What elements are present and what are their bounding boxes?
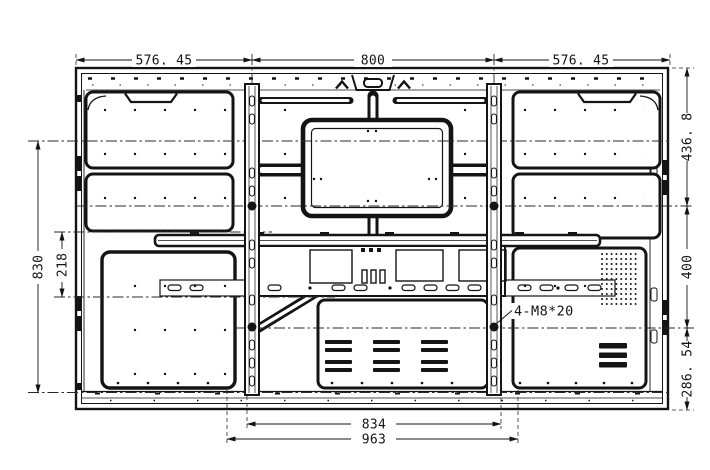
- dim-right-top-label: 436. 8: [681, 113, 696, 162]
- technical-drawing-page: 576. 45 800 576. 45 436. 8 400 286. 54 8…: [0, 0, 710, 470]
- vesa-rail-right: [487, 84, 501, 395]
- vent-slots-right: [599, 343, 627, 368]
- mount-note-label: 4-M8*20: [514, 304, 574, 320]
- mount-crossbar: [155, 232, 600, 246]
- dim-left-inner-label: 218: [56, 253, 71, 277]
- rear-panel-drawing: 576. 45 800 576. 45 436. 8 400 286. 54 8…: [0, 0, 710, 470]
- vesa-rail-left: [245, 84, 259, 395]
- dim-bottom-inner-label: 834: [362, 418, 386, 433]
- mount-hole-top-left: [248, 202, 257, 211]
- dim-right-middle-label: 400: [681, 255, 696, 279]
- dim-left-outer-label: 830: [32, 255, 47, 279]
- mount-hole-bottom-right: [490, 323, 499, 332]
- mount-hole-bottom-left: [248, 323, 257, 332]
- dim-top-right-label: 576. 45: [553, 54, 610, 69]
- dim-top-left-label: 576. 45: [136, 54, 193, 69]
- dim-right-bottom-label: 286. 54: [681, 341, 696, 398]
- dim-top-center-label: 800: [361, 54, 385, 69]
- dim-bottom-outer-label: 963: [362, 433, 386, 448]
- mount-hole-top-right: [490, 202, 499, 211]
